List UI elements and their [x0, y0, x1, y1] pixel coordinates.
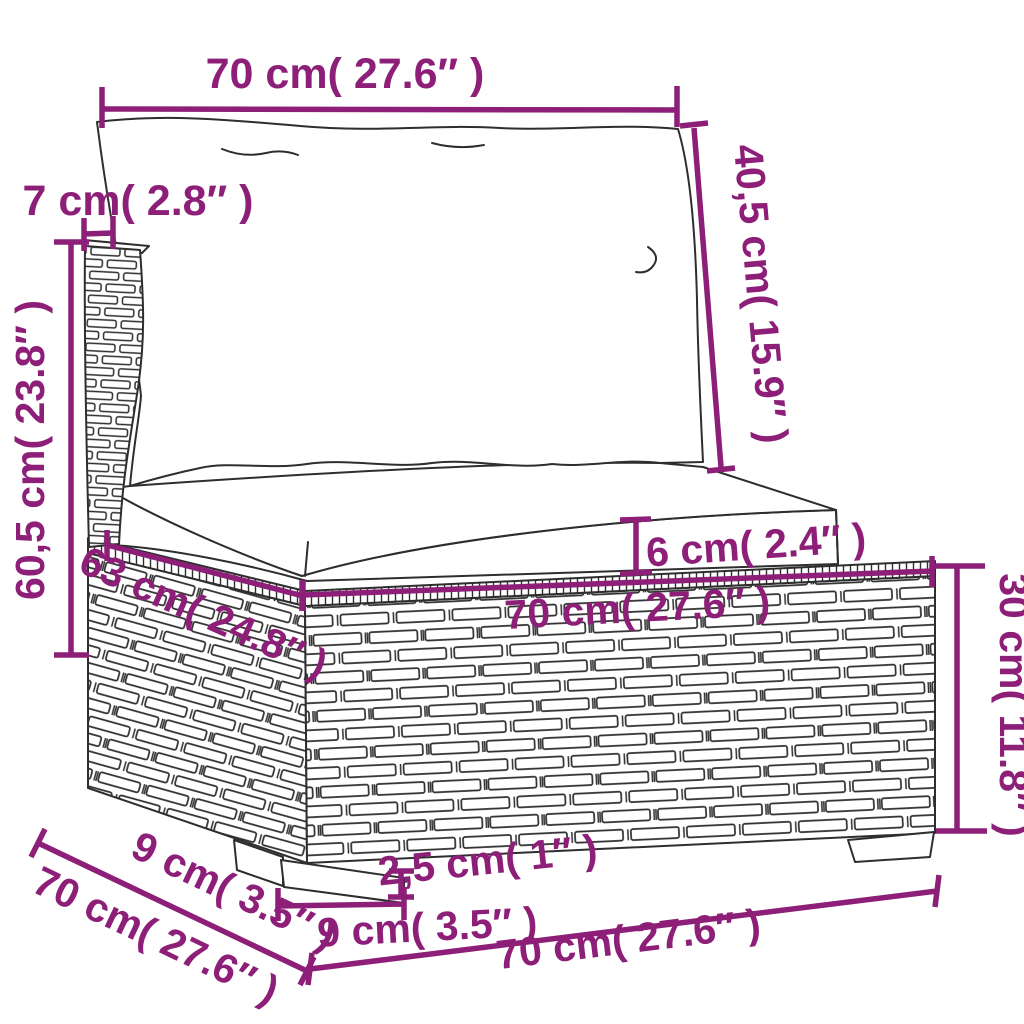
dim-overall-height-label: 60,5 cm( 23.8″ ): [7, 300, 53, 600]
product-dimension-diagram: 70 cm( 27.6″ ) 7 cm( 2.8″ ) 40,5 cm( 15.…: [0, 0, 1024, 1024]
dim-overall-height-line: [54, 242, 89, 655]
dim-top-width: 70 cm( 27.6″ ): [102, 50, 677, 128]
dim-back-height-label: 40,5 cm( 15.9″ ): [725, 142, 797, 445]
back-cushion-body: [97, 118, 703, 486]
diagram-canvas: 70 cm( 27.6″ ) 7 cm( 2.8″ ) 40,5 cm( 15.…: [0, 0, 1024, 1024]
dim-base-height-label: 30 cm( 11.8″ ): [991, 573, 1024, 837]
sofa-line-art: [84, 118, 935, 903]
dim-base-height-line: [932, 566, 987, 831]
dim-base-height: 30 cm( 11.8″ ): [932, 566, 1024, 837]
dim-top-width-label: 70 cm( 27.6″ ): [206, 50, 485, 98]
back-cushion: [97, 118, 703, 486]
dim-overall-height: 60,5 cm( 23.8″ ): [7, 242, 89, 655]
dim-back-thickness-label: 7 cm( 2.8″ ): [23, 177, 254, 225]
